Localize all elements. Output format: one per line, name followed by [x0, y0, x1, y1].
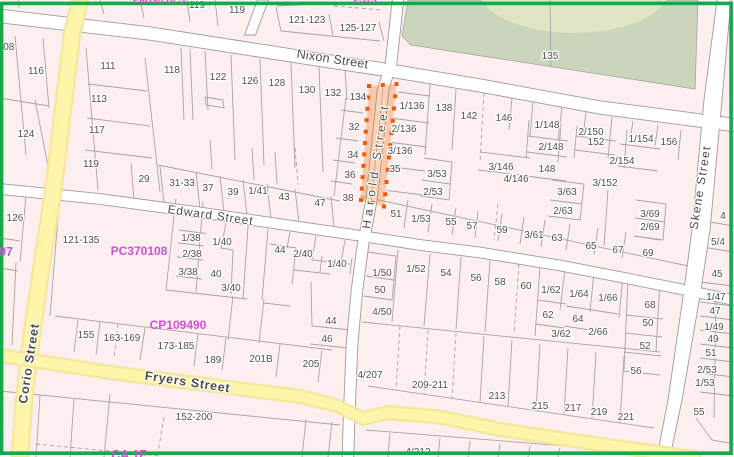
svg-text:124: 124 [18, 129, 35, 140]
svg-text:1/47: 1/47 [706, 292, 726, 303]
svg-text:215: 215 [532, 401, 549, 412]
svg-text:55: 55 [445, 217, 457, 228]
svg-text:4/146: 4/146 [503, 174, 528, 185]
svg-text:163-169: 163-169 [104, 333, 141, 344]
svg-text:55: 55 [693, 407, 705, 418]
svg-text:62: 62 [542, 310, 554, 321]
svg-text:37: 37 [202, 183, 214, 194]
svg-text:51: 51 [390, 209, 402, 220]
svg-text:31-33: 31-33 [169, 178, 195, 189]
svg-text:3/61: 3/61 [524, 230, 544, 241]
svg-text:4/50: 4/50 [372, 307, 392, 318]
svg-text:117: 117 [89, 125, 105, 136]
svg-text:2/154: 2/154 [609, 156, 634, 167]
svg-text:134: 134 [350, 92, 367, 103]
svg-text:52: 52 [639, 341, 651, 352]
svg-text:PC370108: PC370108 [111, 244, 168, 258]
svg-text:173-185: 173-185 [158, 341, 195, 352]
svg-text:Parish of S: Parish of S [133, 0, 186, 6]
svg-text:64: 64 [572, 314, 584, 325]
svg-text:2/148: 2/148 [538, 142, 563, 153]
svg-text:39: 39 [227, 187, 239, 198]
svg-text:146: 146 [496, 113, 513, 124]
svg-text:128: 128 [269, 78, 286, 89]
svg-text:49: 49 [707, 334, 719, 345]
svg-text:1/66: 1/66 [598, 293, 618, 304]
svg-text:126: 126 [7, 213, 24, 224]
svg-text:118: 118 [164, 65, 180, 76]
svg-text:58: 58 [494, 277, 506, 288]
svg-text:148: 148 [539, 164, 556, 175]
svg-text:2/40: 2/40 [293, 249, 313, 260]
svg-text:1/53: 1/53 [695, 378, 715, 389]
svg-text:1/53: 1/53 [411, 214, 431, 225]
svg-text:2/38: 2/38 [182, 249, 202, 260]
svg-text:219: 219 [591, 407, 608, 418]
svg-text:CP109490: CP109490 [150, 318, 207, 332]
svg-text:44: 44 [274, 245, 286, 256]
svg-text:152-200: 152-200 [176, 412, 213, 423]
svg-text:205: 205 [303, 359, 320, 370]
svg-text:121-135: 121-135 [63, 235, 100, 246]
svg-text:69: 69 [642, 248, 654, 259]
svg-text:1/41: 1/41 [248, 186, 268, 197]
svg-text:47: 47 [314, 198, 326, 209]
svg-text:126: 126 [242, 76, 259, 87]
svg-text:35: 35 [389, 164, 401, 175]
svg-text:3/69: 3/69 [640, 209, 660, 220]
svg-text:1/40: 1/40 [212, 237, 232, 248]
svg-text:50: 50 [642, 318, 654, 329]
svg-text:CA 1F: CA 1F [111, 448, 147, 457]
svg-text:119: 119 [229, 5, 245, 16]
svg-text:29: 29 [138, 174, 150, 185]
svg-text:135: 135 [542, 51, 559, 62]
svg-text:P373: P373 [353, 0, 377, 6]
svg-text:1/40: 1/40 [327, 259, 347, 270]
svg-text:54: 54 [440, 268, 452, 279]
svg-text:2/136: 2/136 [391, 124, 416, 135]
svg-text:1/154: 1/154 [628, 134, 653, 145]
svg-text:3/40: 3/40 [221, 283, 241, 294]
svg-text:60: 60 [520, 281, 532, 292]
svg-text:152: 152 [588, 137, 605, 148]
svg-text:111: 111 [100, 61, 116, 72]
svg-text:1/50: 1/50 [372, 268, 392, 279]
svg-text:1/52: 1/52 [406, 264, 426, 275]
svg-text:122: 122 [210, 72, 227, 83]
svg-text:209-211: 209-211 [412, 380, 448, 391]
svg-text:3/53: 3/53 [427, 169, 447, 180]
svg-text:50: 50 [374, 285, 386, 296]
svg-text:38: 38 [342, 193, 354, 204]
svg-text:2/63: 2/63 [553, 206, 573, 217]
svg-text:2/53: 2/53 [697, 365, 717, 376]
svg-text:116: 116 [28, 66, 44, 77]
svg-text:59: 59 [496, 225, 508, 236]
svg-text:3/63: 3/63 [557, 187, 577, 198]
svg-text:2/66: 2/66 [588, 327, 608, 338]
svg-text:1/64: 1/64 [569, 289, 589, 300]
svg-text:132: 132 [325, 88, 342, 99]
svg-text:97: 97 [0, 245, 13, 259]
svg-text:43: 43 [278, 192, 290, 203]
svg-text:3/136: 3/136 [387, 146, 412, 157]
svg-text:3/38: 3/38 [178, 267, 198, 278]
svg-text:40: 40 [210, 269, 222, 280]
svg-text:213: 213 [489, 391, 506, 402]
svg-text:46: 46 [321, 334, 333, 345]
svg-text:138: 138 [436, 103, 453, 114]
svg-text:34: 34 [347, 150, 359, 161]
svg-text:1/136: 1/136 [399, 101, 424, 112]
svg-text:130: 130 [299, 85, 316, 96]
svg-text:119: 119 [83, 159, 99, 170]
svg-text:125-127: 125-127 [340, 23, 377, 34]
svg-text:63: 63 [551, 233, 563, 244]
svg-text:4/207: 4/207 [357, 370, 382, 381]
svg-text:1/38: 1/38 [181, 233, 201, 244]
svg-text:201B: 201B [249, 354, 273, 365]
svg-text:155: 155 [78, 330, 95, 341]
svg-text:32: 32 [348, 122, 360, 133]
svg-text:51: 51 [705, 348, 717, 359]
svg-text:4: 4 [720, 211, 726, 222]
svg-text:3/152: 3/152 [592, 178, 617, 189]
svg-text:44: 44 [325, 316, 337, 327]
svg-text:1/62: 1/62 [541, 285, 561, 296]
svg-text:217: 217 [565, 403, 582, 414]
svg-text:47: 47 [709, 306, 721, 317]
svg-text:3/62: 3/62 [551, 329, 571, 340]
svg-text:189: 189 [205, 355, 222, 366]
svg-text:45: 45 [711, 269, 723, 280]
svg-text:156: 156 [661, 137, 678, 148]
svg-text:142: 142 [461, 111, 478, 122]
svg-text:1/49: 1/49 [704, 322, 724, 333]
svg-text:2/69: 2/69 [640, 222, 660, 233]
svg-text:67: 67 [612, 245, 624, 256]
svg-text:36: 36 [344, 170, 356, 181]
svg-text:1/148: 1/148 [534, 120, 559, 131]
svg-text:113: 113 [91, 94, 107, 105]
svg-text:121-123: 121-123 [289, 15, 326, 26]
svg-text:56: 56 [630, 366, 642, 377]
svg-text:57: 57 [466, 221, 478, 232]
svg-text:221: 221 [618, 412, 635, 423]
svg-text:65: 65 [585, 241, 597, 252]
svg-text:5/4: 5/4 [711, 237, 725, 248]
svg-text:56: 56 [470, 273, 482, 284]
svg-text:3/146: 3/146 [488, 162, 513, 173]
svg-text:2/53: 2/53 [423, 187, 443, 198]
svg-text:68: 68 [644, 300, 656, 311]
